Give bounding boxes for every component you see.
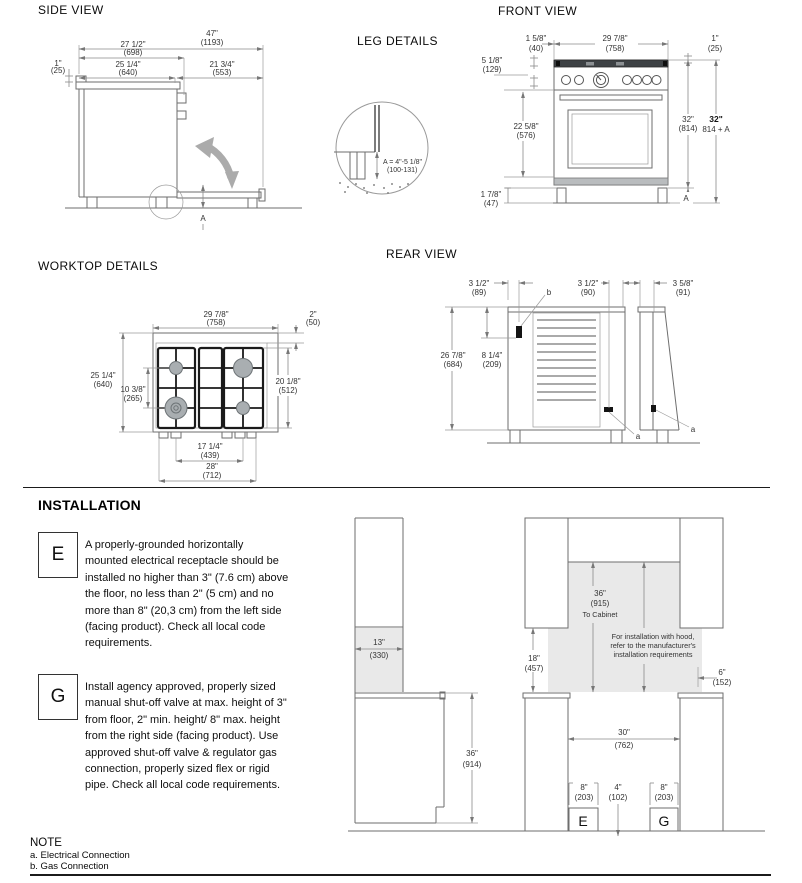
worktop-details-title: WORKTOP DETAILS	[38, 259, 158, 273]
note-item-a: a. Electrical Connection	[30, 850, 130, 862]
dim-kick-in: 1 7/8"	[481, 190, 502, 199]
dim-elec-zone-mm: (203)	[575, 793, 594, 802]
base-cabinets	[523, 693, 723, 831]
label-a-side: a	[691, 425, 696, 434]
burner-large-right	[234, 359, 253, 378]
dim-counter-height-in: 36"	[466, 749, 478, 758]
rear-side-panel	[638, 307, 679, 443]
e-line: (facing product). Check all local code	[85, 619, 335, 635]
leg-details-drawing: A = 4"-5 1/8" (100-131)	[330, 55, 480, 205]
key-box-g: G	[38, 674, 78, 720]
dim-rear-height-in: 26 7/8"	[440, 351, 465, 360]
dim-center-mm: (102)	[609, 793, 628, 802]
mount-tabs	[159, 432, 256, 438]
dim-front-leg-a: A	[683, 194, 689, 203]
leg-detail-circle	[149, 185, 183, 219]
installation-title: INSTALLATION	[38, 497, 141, 513]
dim-door-mm: (576)	[517, 131, 536, 140]
dim-elec-height-mm: (209)	[483, 360, 502, 369]
dim-elec-offset-in: 3 1/2"	[469, 279, 490, 288]
dim-wt-depth-in: 25 1/4"	[90, 371, 115, 380]
dim-elec-offset-mm: (89)	[472, 288, 487, 297]
installation-side-diagram: 13" (330) 36" (914)	[348, 515, 515, 840]
dim-counter-height-mm: (914)	[463, 760, 482, 769]
leg-details-title: LEG DETAILS	[357, 34, 438, 48]
dim-wt-depth-mm: (640)	[94, 380, 113, 389]
dim-gas-offset-in: 3 1/2"	[578, 279, 599, 288]
g-line: Install agency approved, properly sized	[85, 679, 335, 695]
dim-backsplash-mm: (457)	[525, 664, 544, 673]
dim-panel-mm: (91)	[676, 288, 691, 297]
dim-side-in: 1"	[711, 34, 718, 43]
installation-front-diagram: 36" (915) To Cabinet For installation wi…	[515, 515, 800, 840]
dim-depth-handle-mm: (698)	[124, 48, 143, 57]
dim-height-total-in: 32"	[709, 114, 723, 124]
g-line: pipe. Check all local code requirements.	[85, 777, 335, 793]
worktop-drawing: 29 7/8" (758) 2" (50) 25 1/4" (640) 10 3…	[30, 280, 330, 495]
dim-base-width-mm: (712)	[203, 471, 222, 480]
dim-cabinet-in: 36"	[594, 589, 606, 598]
dim-cabinet-mm: (915)	[591, 599, 610, 608]
burner-small-left	[170, 362, 183, 375]
spec-sheet-page: SIDE VIEW FRONT VIEW LEG DETAILS WORKTOP…	[0, 0, 802, 883]
g-line: approved shut-off valve & regulator gas	[85, 745, 335, 761]
dim-elec-zone-in: 8"	[580, 783, 587, 792]
dim-burner-offset-in: 1 5/8"	[526, 34, 547, 43]
vent-slats	[537, 320, 596, 400]
detail-circle	[336, 102, 428, 194]
e-line: more than 8" (20,3 cm) from the left sid…	[85, 603, 335, 619]
dim-side-clearance-in: 6"	[718, 668, 725, 677]
dim-panel-in: 3 5/8"	[673, 279, 694, 288]
label-a-main: a	[636, 432, 641, 441]
dim-elec-height-in: 8 1/4"	[482, 351, 503, 360]
g-line: connection, properly sized flex or rigid	[85, 761, 335, 777]
dim-cabinet-note: To Cabinet	[583, 610, 618, 619]
dim-burner-span-in: 10 3/8"	[120, 385, 145, 394]
front-view-drawing: 1 5/8" (40) 29 7/8" (758) 1" (25) 5 1/8"…	[480, 25, 802, 225]
side-view-drawing: A 47" (1193) 27 1/2" (698) 1" (25) 25 1/…	[30, 25, 330, 230]
gas-connection-point	[516, 326, 522, 338]
dim-door-in: 22 5/8"	[513, 122, 538, 131]
dim-burner-width-in: 17 1/4"	[197, 442, 222, 451]
dim-gas-zone-mm: (203)	[655, 793, 674, 802]
base-cabinet-profile	[355, 692, 445, 823]
hood-note-line3: installation requirements	[613, 650, 692, 659]
e-line: the floor, no less than 2" (5 cm) and no	[85, 586, 335, 602]
section-divider	[23, 487, 770, 488]
rear-view-title: REAR VIEW	[386, 247, 457, 261]
dim-rear-strip-mm: (50)	[306, 318, 321, 327]
dim-height-total-mm: 814 + A	[702, 125, 730, 134]
g-line: from floor, 2" min. height/ 8" max. heig…	[85, 712, 335, 728]
e-line: mounted electrical receptacle should be	[85, 553, 335, 569]
dim-door-open-mm: (553)	[213, 68, 232, 77]
dim-base-width-in: 28"	[206, 462, 218, 471]
range-side-profile	[76, 76, 265, 208]
g-line: from the right side (facing product). Us…	[85, 728, 335, 744]
front-view-title: FRONT VIEW	[498, 4, 577, 18]
dim-backsplash-in: 18"	[528, 654, 540, 663]
control-knobs	[562, 73, 662, 88]
range-front-profile	[553, 60, 670, 203]
key-letter-e: E	[52, 544, 65, 566]
clearance-shaded-area	[548, 562, 702, 692]
dim-overall-depth-in: 47"	[206, 29, 218, 38]
dim-burner-width-mm: (439)	[201, 451, 220, 460]
electrical-connection-point-side	[651, 405, 656, 412]
hood-note-line2: refer to the manufacturer's	[610, 641, 696, 650]
burner-small-right	[237, 402, 250, 415]
electrical-instructions: A properly-grounded horizontally mounted…	[85, 537, 335, 652]
dim-clearance-mm: (330)	[370, 651, 389, 660]
e-line: requirements.	[85, 635, 335, 651]
gas-instructions: Install agency approved, properly sized …	[85, 679, 335, 794]
open-door	[177, 192, 261, 198]
zone-letter-g: G	[659, 813, 670, 829]
rear-view-drawing: b a a 3 1/2" (89) 3 1/2" (90) 3 5/8" (91…	[395, 270, 725, 460]
e-line: installed no higher than 3" (7.6 cm) abo…	[85, 570, 335, 586]
dim-top-trim-mm: (25)	[51, 66, 66, 75]
leg-formula-in: A = 4"-5 1/8"	[383, 159, 423, 166]
side-view-title: SIDE VIEW	[38, 3, 104, 17]
ground-speckle	[339, 182, 409, 194]
dim-overall-depth-mm: (1193)	[201, 38, 224, 47]
g-line: manual shut-off valve at max. height of …	[85, 695, 335, 711]
dim-opening-in: 30"	[618, 728, 630, 737]
dim-side-mm: (25)	[708, 44, 723, 53]
key-letter-g: G	[51, 686, 66, 708]
dim-clearance-in: 13"	[373, 638, 385, 647]
dim-grate-depth-mm: (512)	[279, 386, 298, 395]
note-item-b: b. Gas Connection	[30, 861, 109, 873]
dim-burner-span-mm: (265)	[124, 394, 143, 403]
dim-body-depth-mm: (640)	[119, 68, 138, 77]
oven-window	[568, 110, 652, 168]
dim-opening-mm: (762)	[615, 741, 634, 750]
zone-letter-e: E	[578, 813, 587, 829]
door-swing-arrow-icon	[195, 137, 239, 189]
burner-large-left	[165, 397, 187, 419]
dim-burner-offset-mm: (40)	[529, 44, 544, 53]
dim-wt-width-mm: (758)	[207, 318, 226, 327]
key-box-e: E	[38, 532, 78, 578]
rear-body	[508, 307, 625, 443]
worktop-top-view	[153, 333, 278, 438]
leg-formula-mm: (100-131)	[387, 167, 417, 174]
note-title: NOTE	[30, 837, 62, 849]
dim-grate-depth-in: 20 1/8"	[275, 377, 300, 386]
dim-gas-offset-mm: (90)	[581, 288, 596, 297]
hood-note-line1: For installation with hood,	[612, 632, 695, 641]
dim-height-in: 32"	[682, 115, 694, 124]
label-b: b	[547, 288, 552, 297]
dim-kick-mm: (47)	[484, 199, 499, 208]
dim-center-in: 4"	[614, 783, 621, 792]
dim-panel-mm: (129)	[483, 65, 502, 74]
dim-width-mm: (758)	[606, 44, 625, 53]
dim-height-mm: (814)	[679, 124, 698, 133]
page-bottom-rule	[30, 874, 771, 876]
dim-side-clearance-mm: (152)	[713, 678, 732, 687]
dim-panel-in: 5 1/8"	[482, 56, 503, 65]
dim-gas-zone-in: 8"	[660, 783, 667, 792]
dim-leg-a: A	[200, 214, 206, 223]
oven-handle	[560, 95, 662, 100]
dim-width-in: 29 7/8"	[602, 34, 627, 43]
electrical-connection-point	[604, 407, 613, 412]
e-line: A properly-grounded horizontally	[85, 537, 335, 553]
dim-rear-height-mm: (684)	[444, 360, 463, 369]
